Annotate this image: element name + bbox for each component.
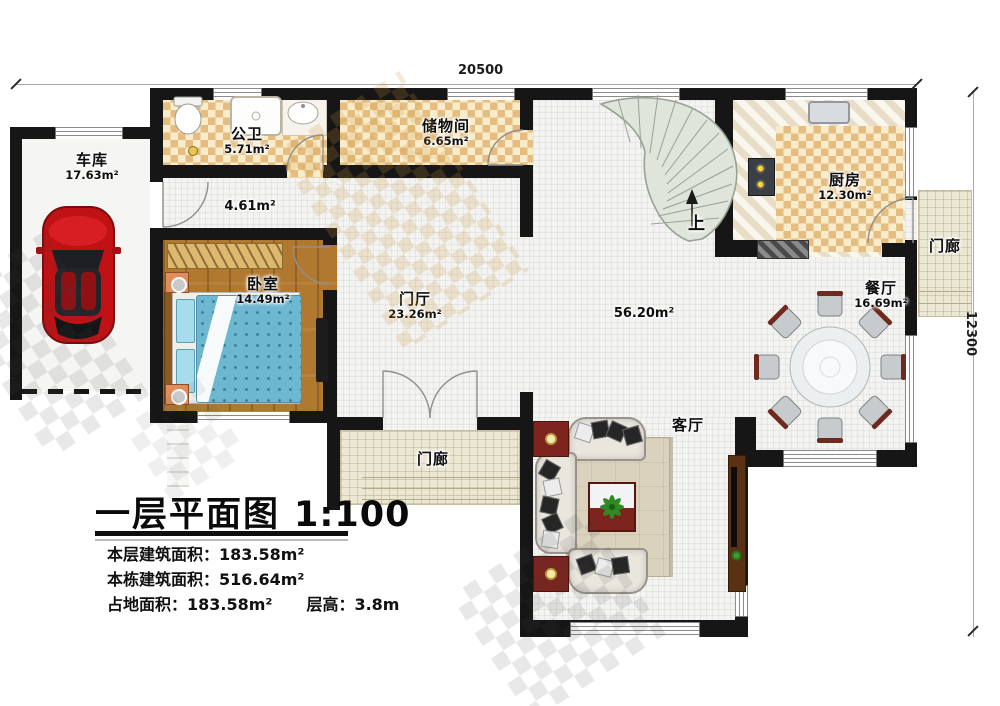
stat-building-area: 本栋建筑面积：516.64m² xyxy=(107,566,304,590)
stat-label: 层高： xyxy=(306,595,354,614)
room-name: 公卫 xyxy=(224,126,269,143)
dining-set xyxy=(754,291,906,443)
bathroom-sink xyxy=(288,102,318,124)
room-area: 16.69m² xyxy=(854,297,907,310)
garage-hall-door xyxy=(163,182,208,227)
entry-double-door xyxy=(383,371,477,418)
room-label-kitchen: 厨房 12.30m² xyxy=(818,172,871,202)
room-area: 4.61m² xyxy=(224,200,275,215)
shower-drain xyxy=(252,112,260,120)
storage-door xyxy=(488,130,523,165)
room-label-great-room: 56.20m² xyxy=(614,307,674,322)
toilet xyxy=(174,97,202,134)
stat-footprint-and-height: 占地面积：183.58m²层高：3.8m xyxy=(107,591,399,615)
room-name: 餐厅 xyxy=(854,280,907,297)
bedroom-door xyxy=(293,247,330,284)
room-label-bedroom: 卧室 14.49m² xyxy=(236,276,289,306)
stat-value: 183.58m² xyxy=(219,545,304,564)
stat-label: 占地面积： xyxy=(107,595,187,614)
room-label-bathroom: 公卫 5.71m² xyxy=(224,126,269,156)
dimension-width-label: 20500 xyxy=(458,63,503,78)
room-label-porch-right: 门廊 xyxy=(929,238,961,255)
room-area: 17.63m² xyxy=(65,169,118,182)
room-label-porch-front: 门廊 xyxy=(417,451,449,468)
stat-floor-area: 本层建筑面积：183.58m² xyxy=(107,541,304,565)
floor-plan: 车库 17.63m² 公卫 5.71m² 储物间 6.65m² 4.61m² 卧… xyxy=(0,0,1000,706)
room-label-garage: 车库 17.63m² xyxy=(65,152,118,182)
room-name: 门廊 xyxy=(417,451,449,468)
dimension-line-right xyxy=(973,92,974,637)
room-name: 厨房 xyxy=(818,172,871,189)
stat-value: 183.58m² xyxy=(187,595,272,614)
room-name: 客厅 xyxy=(672,417,704,434)
spiral-staircase xyxy=(601,95,737,241)
room-label-hall: 4.61m² xyxy=(224,200,275,215)
plant-icon xyxy=(600,495,624,519)
room-name: 车库 xyxy=(65,152,118,169)
stat-value: 3.8m xyxy=(354,595,399,614)
kitchen-porch-door xyxy=(868,198,913,243)
stairs-up-label: 上 xyxy=(688,215,706,235)
room-area: 14.49m² xyxy=(236,293,289,306)
room-area: 12.30m² xyxy=(818,189,871,202)
room-area: 5.71m² xyxy=(224,143,269,156)
room-name: 卧室 xyxy=(236,276,289,293)
room-area: 56.20m² xyxy=(614,307,674,322)
dimension-height-label: 12300 xyxy=(963,311,978,356)
stat-label: 本栋建筑面积： xyxy=(107,570,219,589)
dimension-line-top xyxy=(16,84,917,85)
stat-value: 516.64m² xyxy=(219,570,304,589)
room-label-dining: 餐厅 16.69m² xyxy=(854,280,907,310)
plan-title-text: 一层平面图 xyxy=(95,495,280,535)
room-name: 门廊 xyxy=(929,238,961,255)
plan-scale: 1:100 xyxy=(294,495,410,535)
plan-title: 一层平面图1:100 xyxy=(95,486,410,537)
room-label-living: 客厅 xyxy=(672,417,704,434)
stat-label: 本层建筑面积： xyxy=(107,545,219,564)
title-underline xyxy=(95,531,348,536)
